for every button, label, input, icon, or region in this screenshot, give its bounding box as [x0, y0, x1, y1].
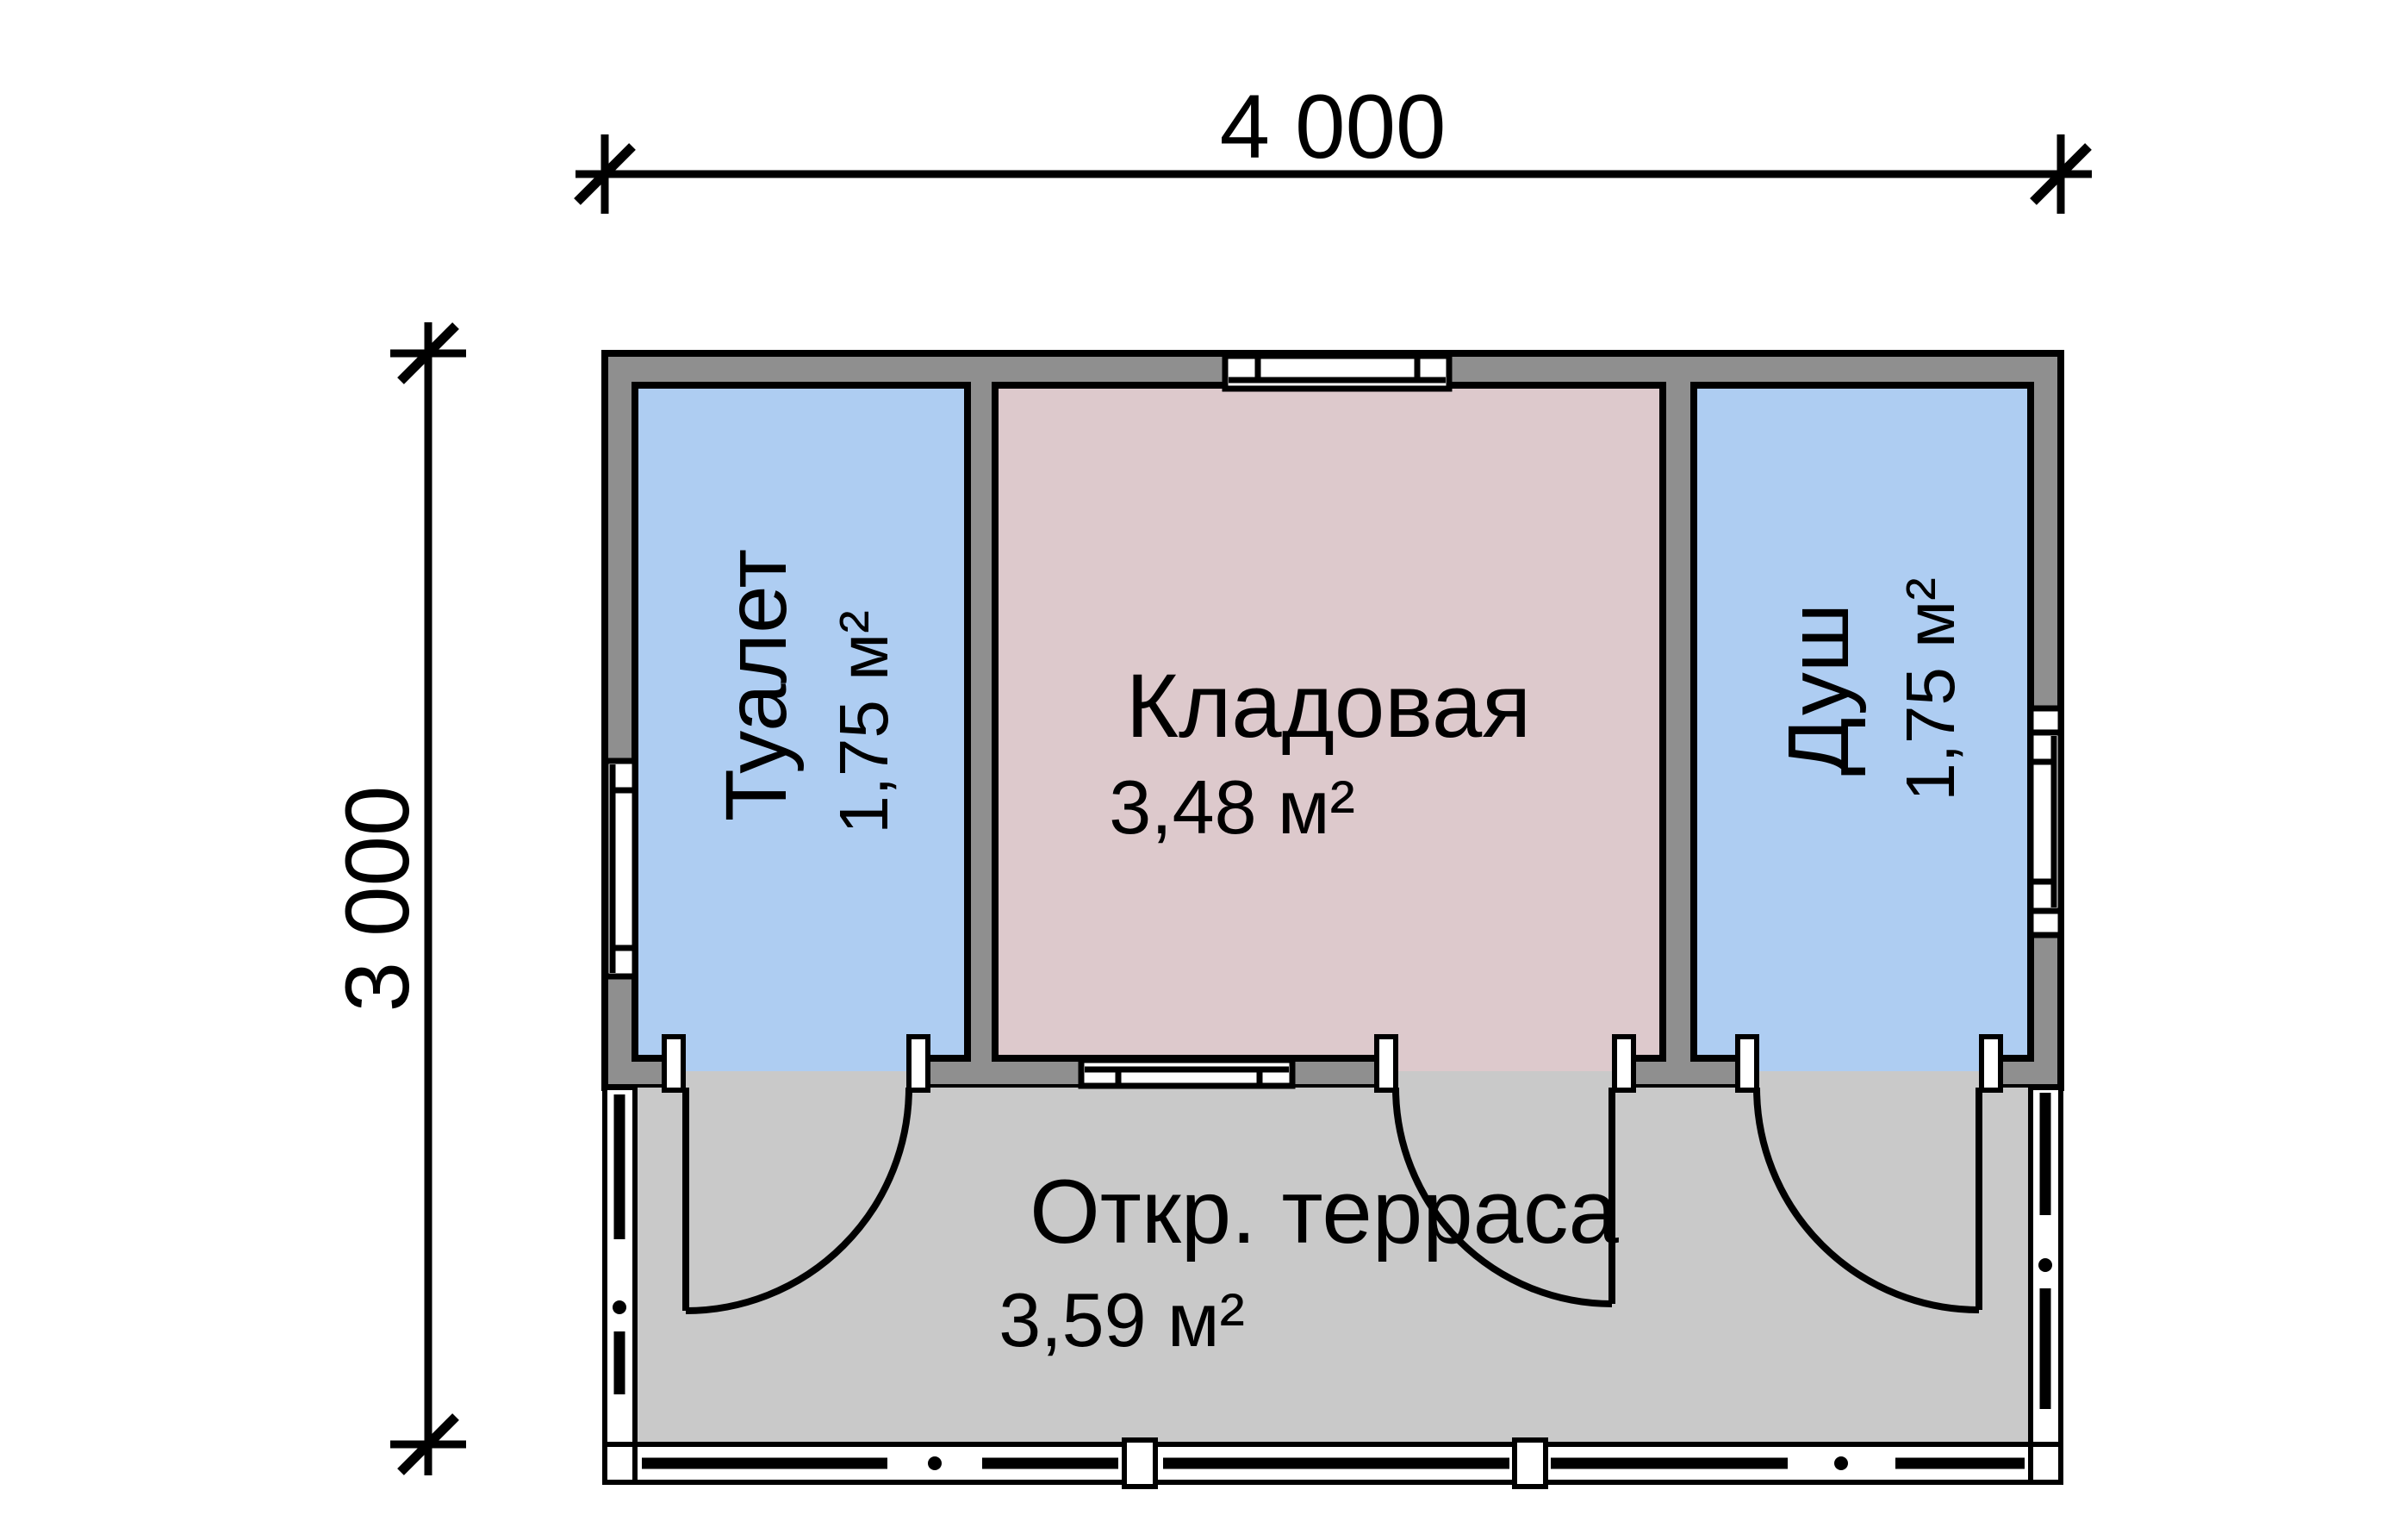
railing-post [2031, 1444, 2061, 1482]
room-storage-area: 3,48 м² [1109, 764, 1355, 850]
dim-height-label: 3 000 [327, 786, 428, 1013]
window-east [2031, 708, 2061, 935]
dim-width-label: 4 000 [1220, 77, 1447, 178]
railing-post [1124, 1440, 1155, 1487]
railing-post [1515, 1440, 1546, 1487]
terrace-area: 3,59 м² [999, 1277, 1245, 1362]
floor-plan: 4 000 3 000 [0, 0, 2408, 1540]
room-shower-area: 1,75 м² [1892, 577, 1969, 801]
room-shower-label: Душ [1770, 603, 1867, 776]
window-south [1081, 1060, 1292, 1086]
railing-post [605, 1444, 635, 1482]
window-north [1225, 356, 1449, 389]
room-toilet-label: Туалет [708, 549, 805, 821]
room-storage-label: Кладовая [1126, 656, 1531, 757]
room-toilet-area: 1,75 м² [825, 610, 902, 834]
terrace-deck [635, 1088, 2031, 1444]
terrace-label: Откр. терраса [1030, 1162, 1619, 1263]
window-west [606, 761, 635, 976]
